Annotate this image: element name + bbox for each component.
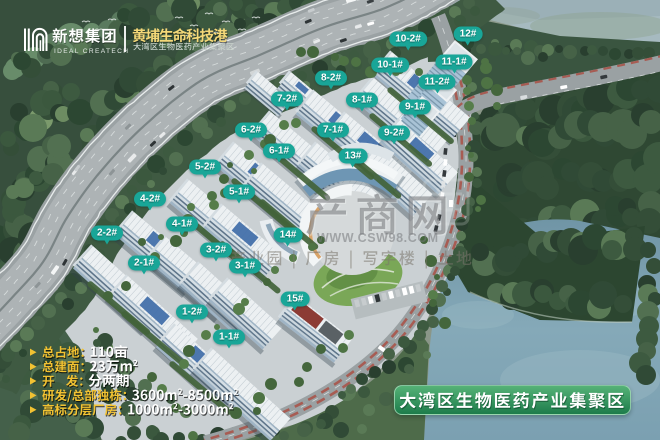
svg-text:WWW.CSW98.COM: WWW.CSW98.COM xyxy=(317,231,439,245)
svg-text:IDEAL CREATECH: IDEAL CREATECH xyxy=(54,48,129,55)
